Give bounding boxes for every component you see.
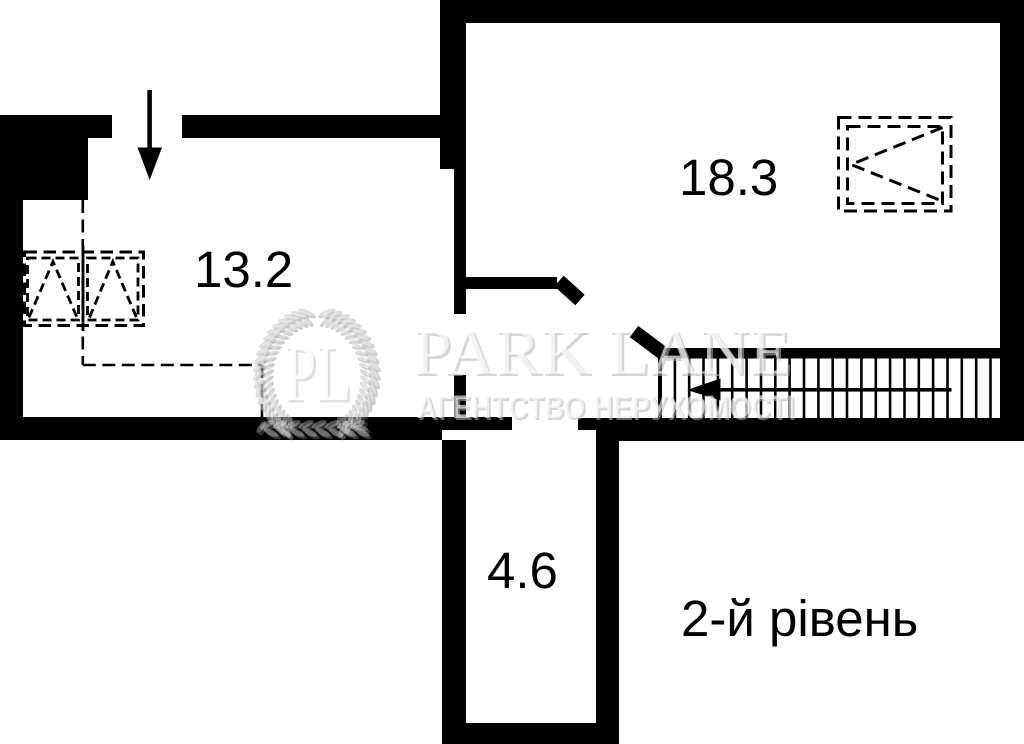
svg-text:13.2: 13.2 xyxy=(194,241,293,298)
svg-text:2-й рівень: 2-й рівень xyxy=(681,590,918,647)
svg-text:АГЕНТСТВО НЕРУХОМОСТІ: АГЕНТСТВО НЕРУХОМОСТІ xyxy=(417,389,795,425)
svg-text:PARK LANE: PARK LANE xyxy=(413,316,791,389)
svg-text:18.3: 18.3 xyxy=(679,149,778,206)
svg-text:4.6: 4.6 xyxy=(487,542,558,599)
svg-text:PL: PL xyxy=(284,327,351,418)
